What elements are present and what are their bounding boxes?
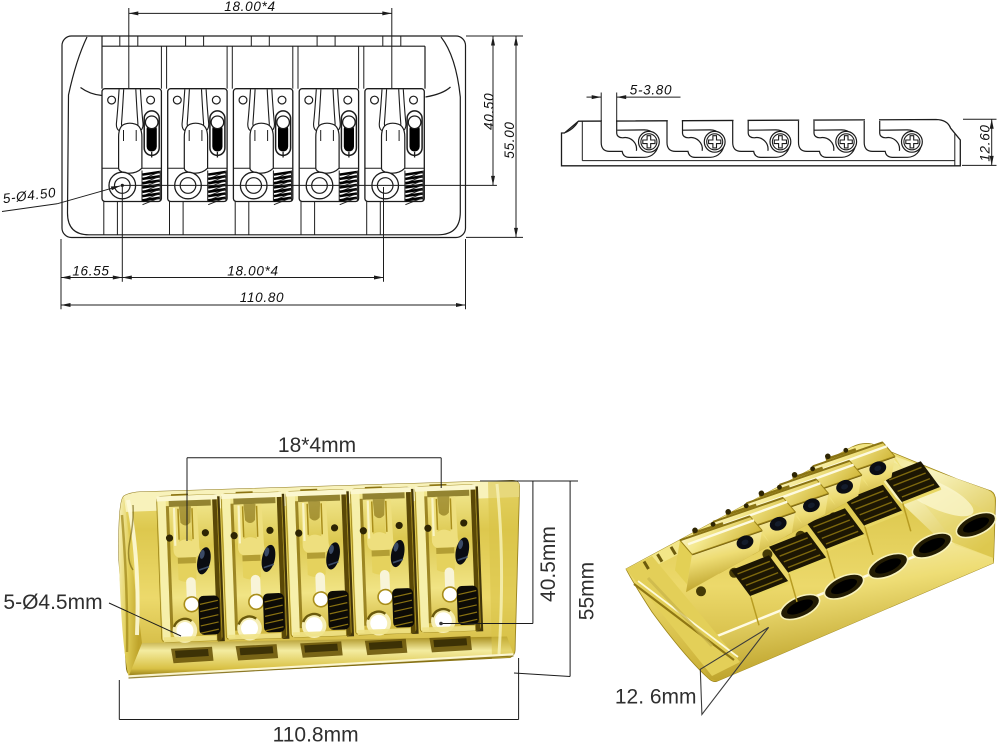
svg-text:55mm: 55mm bbox=[576, 562, 599, 620]
svg-text:18*4mm: 18*4mm bbox=[278, 434, 356, 457]
svg-text:110.80: 110.80 bbox=[240, 290, 285, 305]
svg-text:40.5mm: 40.5mm bbox=[537, 526, 560, 602]
svg-text:40.50: 40.50 bbox=[482, 93, 497, 130]
svg-text:18.00*4: 18.00*4 bbox=[227, 264, 278, 279]
svg-text:12.60: 12.60 bbox=[978, 124, 993, 161]
svg-text:12. 6mm: 12. 6mm bbox=[615, 686, 697, 709]
svg-text:5-3.80: 5-3.80 bbox=[630, 83, 672, 98]
svg-text:16.55: 16.55 bbox=[72, 264, 109, 279]
svg-text:110.8mm: 110.8mm bbox=[273, 723, 359, 744]
svg-text:18.00*4: 18.00*4 bbox=[224, 0, 275, 14]
svg-text:5-Ø4.5mm: 5-Ø4.5mm bbox=[3, 591, 102, 614]
svg-text:55.00: 55.00 bbox=[502, 121, 517, 158]
